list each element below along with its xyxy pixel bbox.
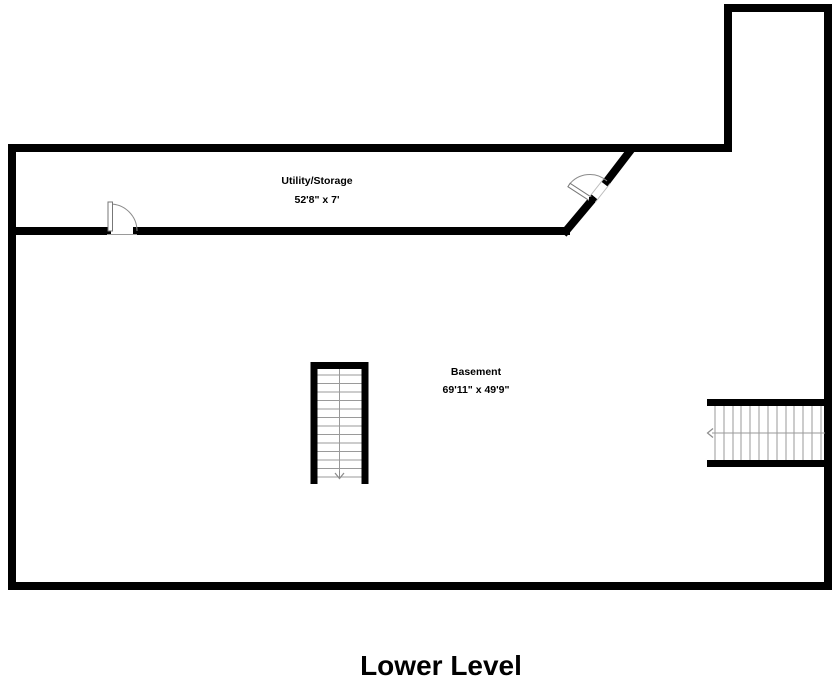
wall-diagonal-lower	[566, 200, 592, 231]
page-title: Lower Level	[360, 650, 522, 681]
room-label-basement: Basement	[451, 366, 502, 378]
room-label-utility-storage: Utility/Storage	[281, 175, 352, 187]
right-staircase	[707, 399, 825, 467]
center-staircase	[311, 362, 369, 484]
room-dimensions-basement: 69'11" x 49'9"	[443, 384, 510, 396]
staircase-treads	[318, 369, 362, 477]
door-swing-arc	[569, 175, 607, 185]
diagonal-wall-door	[568, 175, 610, 203]
walls	[12, 8, 828, 586]
wall-diagonal-upper	[607, 151, 630, 181]
utility-room-door	[107, 202, 137, 235]
door-hinge	[589, 197, 595, 203]
door-leaf	[108, 202, 113, 231]
door-swing-arc	[110, 204, 137, 231]
room-dimensions-utility-storage: 52'8" x 7'	[294, 194, 339, 206]
staircase-treads	[712, 406, 825, 460]
floor-plan-page: Utility/Storage 52'8" x 7' Basement 69'1…	[0, 0, 833, 700]
floor-plan-drawing: Utility/Storage 52'8" x 7' Basement 69'1…	[0, 0, 833, 700]
